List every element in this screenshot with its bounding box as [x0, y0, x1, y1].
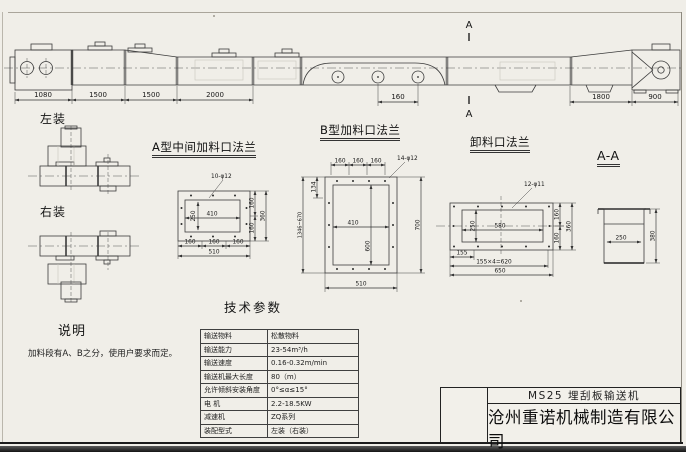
right-mount-drawing: [28, 226, 140, 302]
dim-label: 700: [416, 219, 422, 230]
mid-takeup-unit: [303, 63, 445, 85]
section-aa-drawing: 250 380: [588, 198, 683, 270]
section-aa-title-wrap: A-A: [597, 145, 620, 164]
conveyor-side-view: 1080 1500 1500 2000 160 1800 900 A A: [0, 0, 686, 122]
dim-label: 160: [250, 222, 256, 233]
dim-label: 160: [555, 232, 561, 243]
section-mark-bottom: A: [466, 109, 473, 120]
title-block: MS25 埋刮板输送机 沧州重诺机械制造有限公司: [440, 387, 681, 443]
flange-a-drawing: 10-φ12 250 410 160 160 360 160 160 160 5…: [165, 158, 283, 266]
title-block-right: MS25 埋刮板输送机 沧州重诺机械制造有限公司: [488, 388, 680, 442]
dim-label: 600: [366, 240, 372, 251]
dim-label: 155: [456, 251, 467, 257]
flange-unload-holes-note: 12-φ11: [524, 182, 545, 188]
table-row: 减速机 ZQ系列: [201, 411, 359, 425]
tail-section: [10, 44, 72, 90]
flange-unload-title-wrap: 卸料口法兰: [470, 131, 530, 150]
table-row: 输送机最大长度 80（m）: [201, 370, 359, 384]
dim-label: 250: [615, 236, 626, 242]
dim-label: 900: [648, 93, 661, 101]
dim-label: 510: [208, 250, 219, 256]
flange-a-title: A型中间加料口法兰: [152, 140, 256, 158]
param-label: 输送速度: [201, 357, 268, 371]
dim-label: 160: [208, 240, 219, 246]
param-label: 电 机: [201, 397, 268, 411]
flange-b-holes-note: 14-φ12: [397, 156, 418, 162]
param-value: ZQ系列: [268, 411, 359, 425]
flange-b-title-wrap: B型加料口法兰: [320, 119, 400, 138]
table-row: 输送能力 23-54m³/h: [201, 343, 359, 357]
param-label: 允许倾斜安装角度: [201, 384, 268, 398]
title-block-stamp-cell: [441, 388, 488, 442]
right-mount-label: 右装: [40, 203, 66, 220]
flange-a-holes-note: 10-φ12: [211, 174, 232, 180]
drawing-model-title: MS25 埋刮板输送机: [488, 388, 680, 404]
scan-speck: [520, 300, 522, 302]
param-value: 80（m）: [268, 370, 359, 384]
dim-label: 160: [370, 159, 381, 165]
dim-label: 650: [494, 269, 505, 275]
dim-label: 160: [391, 93, 404, 101]
table-row: 输送速度 0.16-0.32m/min: [201, 357, 359, 371]
conveyor-body: [71, 42, 632, 92]
section-aa-title: A-A: [597, 148, 620, 167]
param-value: 23-54m³/h: [268, 343, 359, 357]
table-row: 电 机 2.2-18.5KW: [201, 397, 359, 411]
dim-label: 1346~670: [298, 212, 304, 238]
param-label: 输送机最大长度: [201, 370, 268, 384]
dim-label: 160: [232, 240, 243, 246]
param-value: 0°≤α≤15°: [268, 384, 359, 398]
dim-label: 360: [261, 210, 267, 221]
flange-b-drawing: 160 160 160 14-φ12 134 1346~670 410 600 …: [293, 148, 448, 300]
param-value: 2.2-18.5KW: [268, 397, 359, 411]
notes-title: 说明: [58, 320, 86, 339]
dim-label: 380: [651, 230, 657, 241]
table-row: 允许倾斜安装角度 0°≤α≤15°: [201, 384, 359, 398]
dim-label: 410: [347, 221, 358, 227]
table-row: 装配型式 左装（右装）: [201, 424, 359, 438]
flange-unload-drawing: 12-φ11 250 580 160 160 360 155 155×4=620…: [436, 172, 604, 284]
dim-label: 155×4=620: [476, 260, 512, 266]
param-value: 左装（右装）: [268, 424, 359, 438]
section-marks: A A: [466, 20, 473, 120]
flange-b-title: B型加料口法兰: [320, 123, 400, 141]
tech-params-title: 技术参数: [224, 297, 282, 316]
dim-label: 1500: [89, 91, 107, 99]
tech-params-table: 输送物料 松散物料 输送能力 23-54m³/h 输送速度 0.16-0.32m…: [200, 329, 359, 438]
dim-label: 160: [184, 240, 195, 246]
dim-label: 160: [334, 159, 345, 165]
left-mount-label: 左装: [40, 110, 66, 127]
dim-label: 1800: [592, 93, 610, 101]
param-label: 输送能力: [201, 343, 268, 357]
param-value: 0.16-0.32m/min: [268, 357, 359, 371]
dim-label: 134: [312, 181, 318, 192]
dim-label: 160: [352, 159, 363, 165]
dim-label: 510: [355, 282, 366, 288]
flange-a-title-wrap: A型中间加料口法兰: [152, 136, 256, 155]
flange-unload-title: 卸料口法兰: [470, 135, 530, 153]
dim-label: 160: [250, 197, 256, 208]
dim-label: 1500: [142, 91, 160, 99]
side-view-dimensions: 1080 1500 1500 2000 160 1800 900: [15, 84, 678, 106]
param-label: 输送物料: [201, 330, 268, 344]
notes-text: 加料段有A、B之分，使用户要求而定。: [28, 347, 177, 359]
dim-label: 160: [555, 209, 561, 220]
table-row: 输送物料 松散物料: [201, 330, 359, 344]
flange-b-holes: [328, 180, 394, 270]
drawing-sheet: 1080 1500 1500 2000 160 1800 900 A A 左装: [0, 0, 686, 452]
param-value: 松散物料: [268, 330, 359, 344]
section-mark-top: A: [466, 20, 473, 31]
dim-label: 2000: [206, 91, 224, 99]
dim-label: 410: [206, 212, 217, 218]
param-label: 装配型式: [201, 424, 268, 438]
company-name: 沧州重诺机械制造有限公司: [488, 404, 680, 452]
param-label: 减速机: [201, 411, 268, 425]
left-mount-drawing: [28, 126, 140, 200]
dim-label: 360: [567, 221, 573, 232]
head-drive-section: [632, 44, 680, 93]
dim-label: 1080: [34, 91, 52, 99]
dim-label: 250: [191, 210, 197, 221]
dim-label: 580: [494, 224, 505, 230]
